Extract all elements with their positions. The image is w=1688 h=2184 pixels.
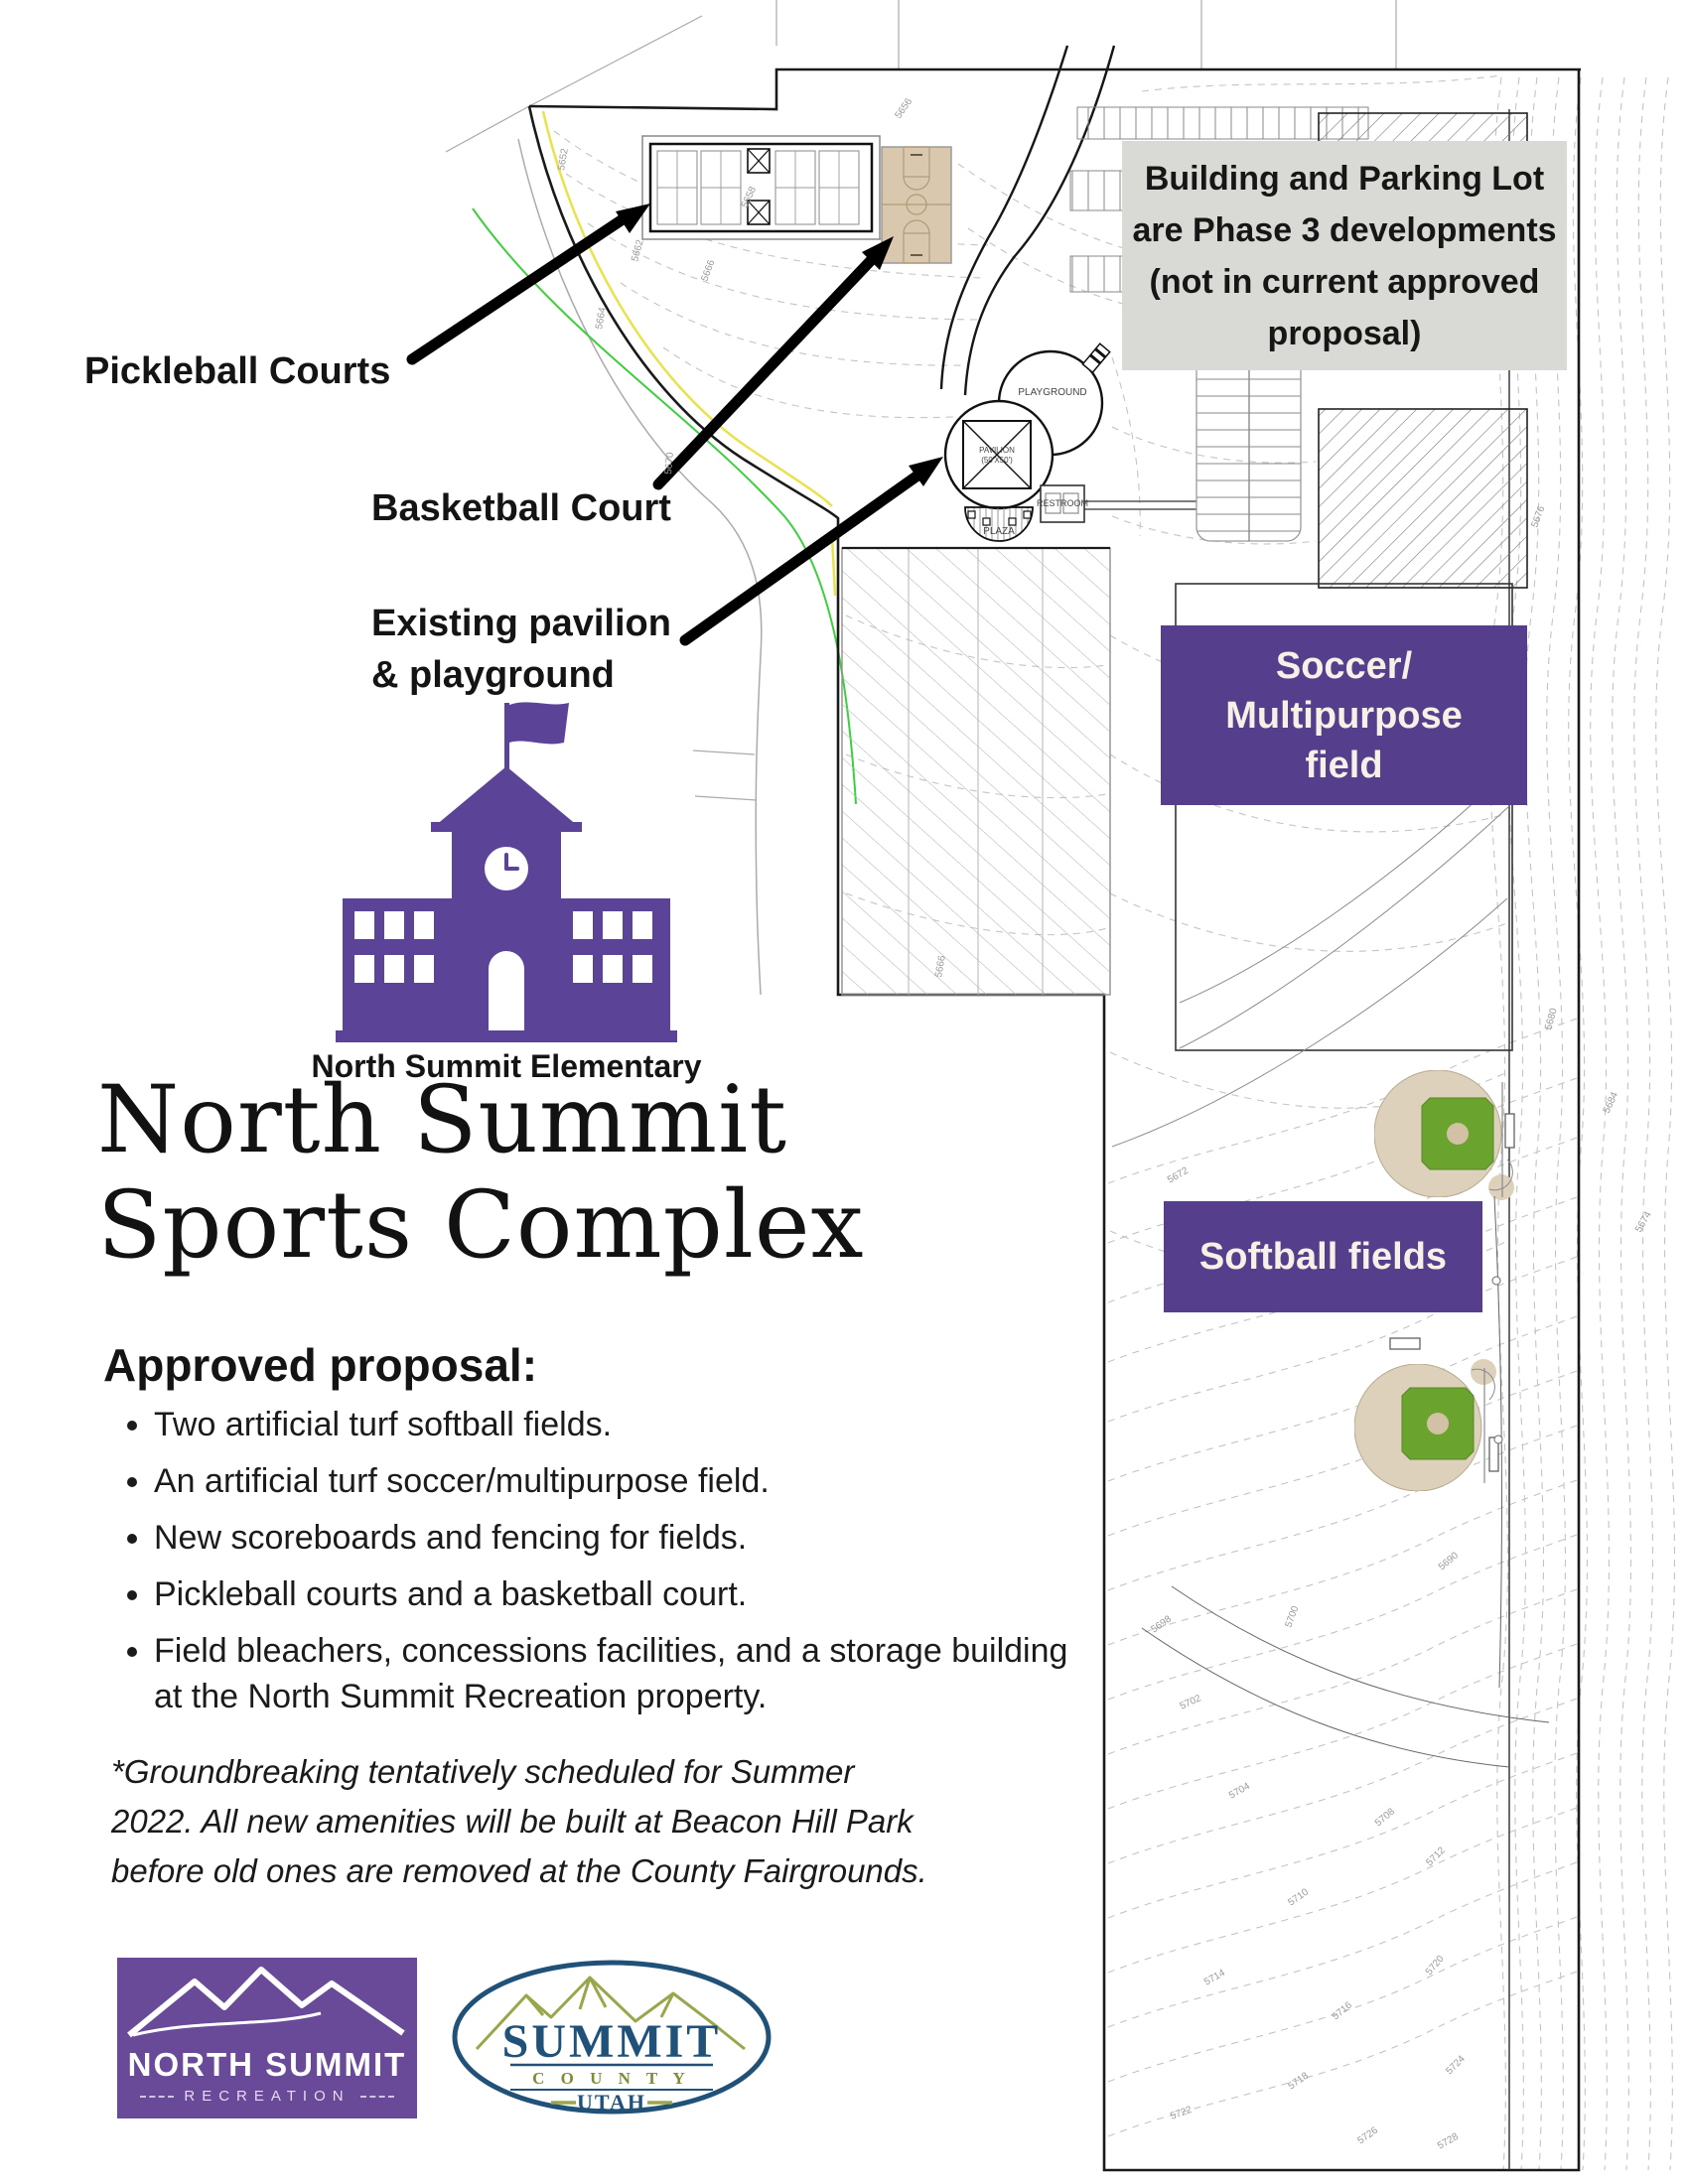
playground-label: PLAYGROUND (1018, 387, 1086, 398)
footnote-line1: *Groundbreaking tentatively scheduled fo… (111, 1747, 1005, 1797)
flyer-page: PLAYGROUND PAVILION (50'X50') RESTROOM P… (0, 0, 1688, 2184)
summit-logo-text: SUMMIT (502, 2015, 722, 2068)
phase3-note-box: Building and Parking Lot are Phase 3 dev… (1122, 141, 1567, 370)
softball-fields-label-box: Softball fields (1164, 1201, 1482, 1312)
soccer-label-line: Multipurpose (1161, 691, 1527, 741)
school-icon (328, 695, 685, 1042)
title-line1: North Summit (97, 1068, 865, 1173)
proposal-bullet: An artificial turf soccer/multipurpose f… (154, 1458, 1077, 1504)
contour-elevation-label: 5700 (1283, 1604, 1301, 1629)
contour-elevation-label: 5676 (1529, 504, 1547, 529)
title-line2: Sports Complex (97, 1173, 865, 1279)
phase3-note-line: Building and Parking Lot (1122, 153, 1567, 205)
contour-elevation-label: 5708 (1373, 1806, 1397, 1829)
mountains-icon (117, 1958, 417, 2041)
footnote-line2: 2022. All new amenities will be built at… (111, 1797, 1005, 1846)
proposal-bullet: Two artificial turf softball fields. (154, 1402, 1077, 1447)
logo-dash-left (140, 2096, 174, 2098)
contour-elevation-label: 5712 (1424, 1844, 1448, 1868)
contour-elevation-label: 5722 (1169, 2105, 1194, 2122)
proposal-bullet: Field bleachers, concessions facilities,… (154, 1628, 1077, 1719)
pavilion-label-line1: Existing pavilion (371, 598, 671, 649)
basketball-arrow (658, 251, 880, 484)
utah-logo-text: UTAH (577, 2090, 646, 2115)
contour-elevation-label: 5728 (1436, 2131, 1461, 2152)
phase3-note-line: are Phase 3 developments (1122, 205, 1567, 256)
contour-elevation-label: 5664 (594, 306, 609, 330)
lower-parking-lot (842, 548, 1110, 995)
contour-elevation-label: 5652 (556, 147, 571, 171)
contour-elevation-label: 5666 (699, 258, 717, 283)
contour-elevation-label: 5698 (1149, 1613, 1174, 1635)
logo-dash-right (360, 2096, 394, 2098)
summit-county-logo: SUMMIT C O U N T Y UTAH (449, 1958, 774, 2117)
existing-pavilion-label: Existing pavilion & playground (371, 598, 671, 701)
phase3-note-line: proposal) (1122, 308, 1567, 359)
contour-elevation-label: 5690 (1437, 1550, 1461, 1572)
entry-road-east (965, 46, 1114, 395)
proposal-bullet: New scoreboards and fencing for fields. (154, 1515, 1077, 1561)
phase3-note-line: (not in current approved (1122, 256, 1567, 308)
pickleball-courts (642, 136, 880, 239)
footnote-line3: before old ones are removed at the Count… (111, 1846, 1005, 1896)
contour-elevation-label: 5680 (1543, 1007, 1559, 1031)
basketball-court (882, 147, 951, 263)
proposal-bullet: Pickleball courts and a basketball court… (154, 1571, 1077, 1617)
county-logo-text: C O U N T Y (532, 2069, 691, 2088)
pavilion-label: PAVILION (979, 446, 1015, 455)
soccer-field-label-box: Soccer/ Multipurpose field (1161, 625, 1527, 805)
contour-elevation-label: 5684 (1602, 1090, 1621, 1115)
contour-elevation-label: 5670 (663, 452, 676, 476)
pavilion-size-label: (50'X50') (981, 456, 1013, 465)
contour-elevation-label: 5672 (1166, 1165, 1191, 1186)
proposal-bullet-list: Two artificial turf softball fields. An … (94, 1402, 1077, 1730)
restroom-label: RESTROOM (1037, 498, 1088, 508)
contour-elevation-label: 5704 (1227, 1781, 1252, 1802)
contour-elevation-label: 5716 (1331, 1999, 1354, 2022)
soccer-label-line: field (1161, 741, 1527, 790)
contour-elevation-label: 5720 (1424, 1953, 1447, 1977)
crosswalk-icon (1082, 343, 1109, 372)
soccer-label-line: Soccer/ (1161, 641, 1527, 691)
pickleball-arrow (412, 217, 626, 359)
softball-field-2 (1354, 1338, 1498, 1491)
contour-elevation-label: 5656 (893, 96, 914, 121)
contour-elevation-label: 5726 (1355, 2124, 1380, 2146)
north-summit-logo-text: NORTH SUMMIT (117, 2048, 417, 2082)
contour-elevation-label: 5662 (630, 238, 645, 263)
contour-elevation-label: 5724 (1444, 2053, 1468, 2077)
recreation-logo-text: RECREATION (184, 2088, 350, 2105)
plaza-label: PLAZA (983, 526, 1015, 537)
page-title: North Summit Sports Complex (97, 1068, 865, 1279)
contour-elevation-label: 5718 (1286, 2070, 1311, 2092)
contour-elevation-label: 5674 (1633, 1209, 1654, 1234)
contour-elevation-label: 5714 (1202, 1968, 1227, 1988)
pickleball-courts-label: Pickleball Courts (84, 345, 390, 397)
approved-proposal-heading: Approved proposal: (103, 1338, 537, 1392)
contour-elevation-label: 5702 (1179, 1693, 1203, 1712)
groundbreaking-footnote: *Groundbreaking tentatively scheduled fo… (111, 1747, 1005, 1896)
north-summit-recreation-logo: NORTH SUMMIT RECREATION (117, 1958, 417, 2118)
basketball-court-label: Basketball Court (371, 482, 671, 534)
pavilion-playground-cluster: PLAYGROUND PAVILION (50'X50') RESTROOM P… (842, 343, 1110, 548)
pavilion-label-line2: & playground (371, 649, 671, 701)
contour-elevation-label: 5710 (1286, 1886, 1311, 1908)
softball-label: Softball fields (1199, 1236, 1447, 1278)
